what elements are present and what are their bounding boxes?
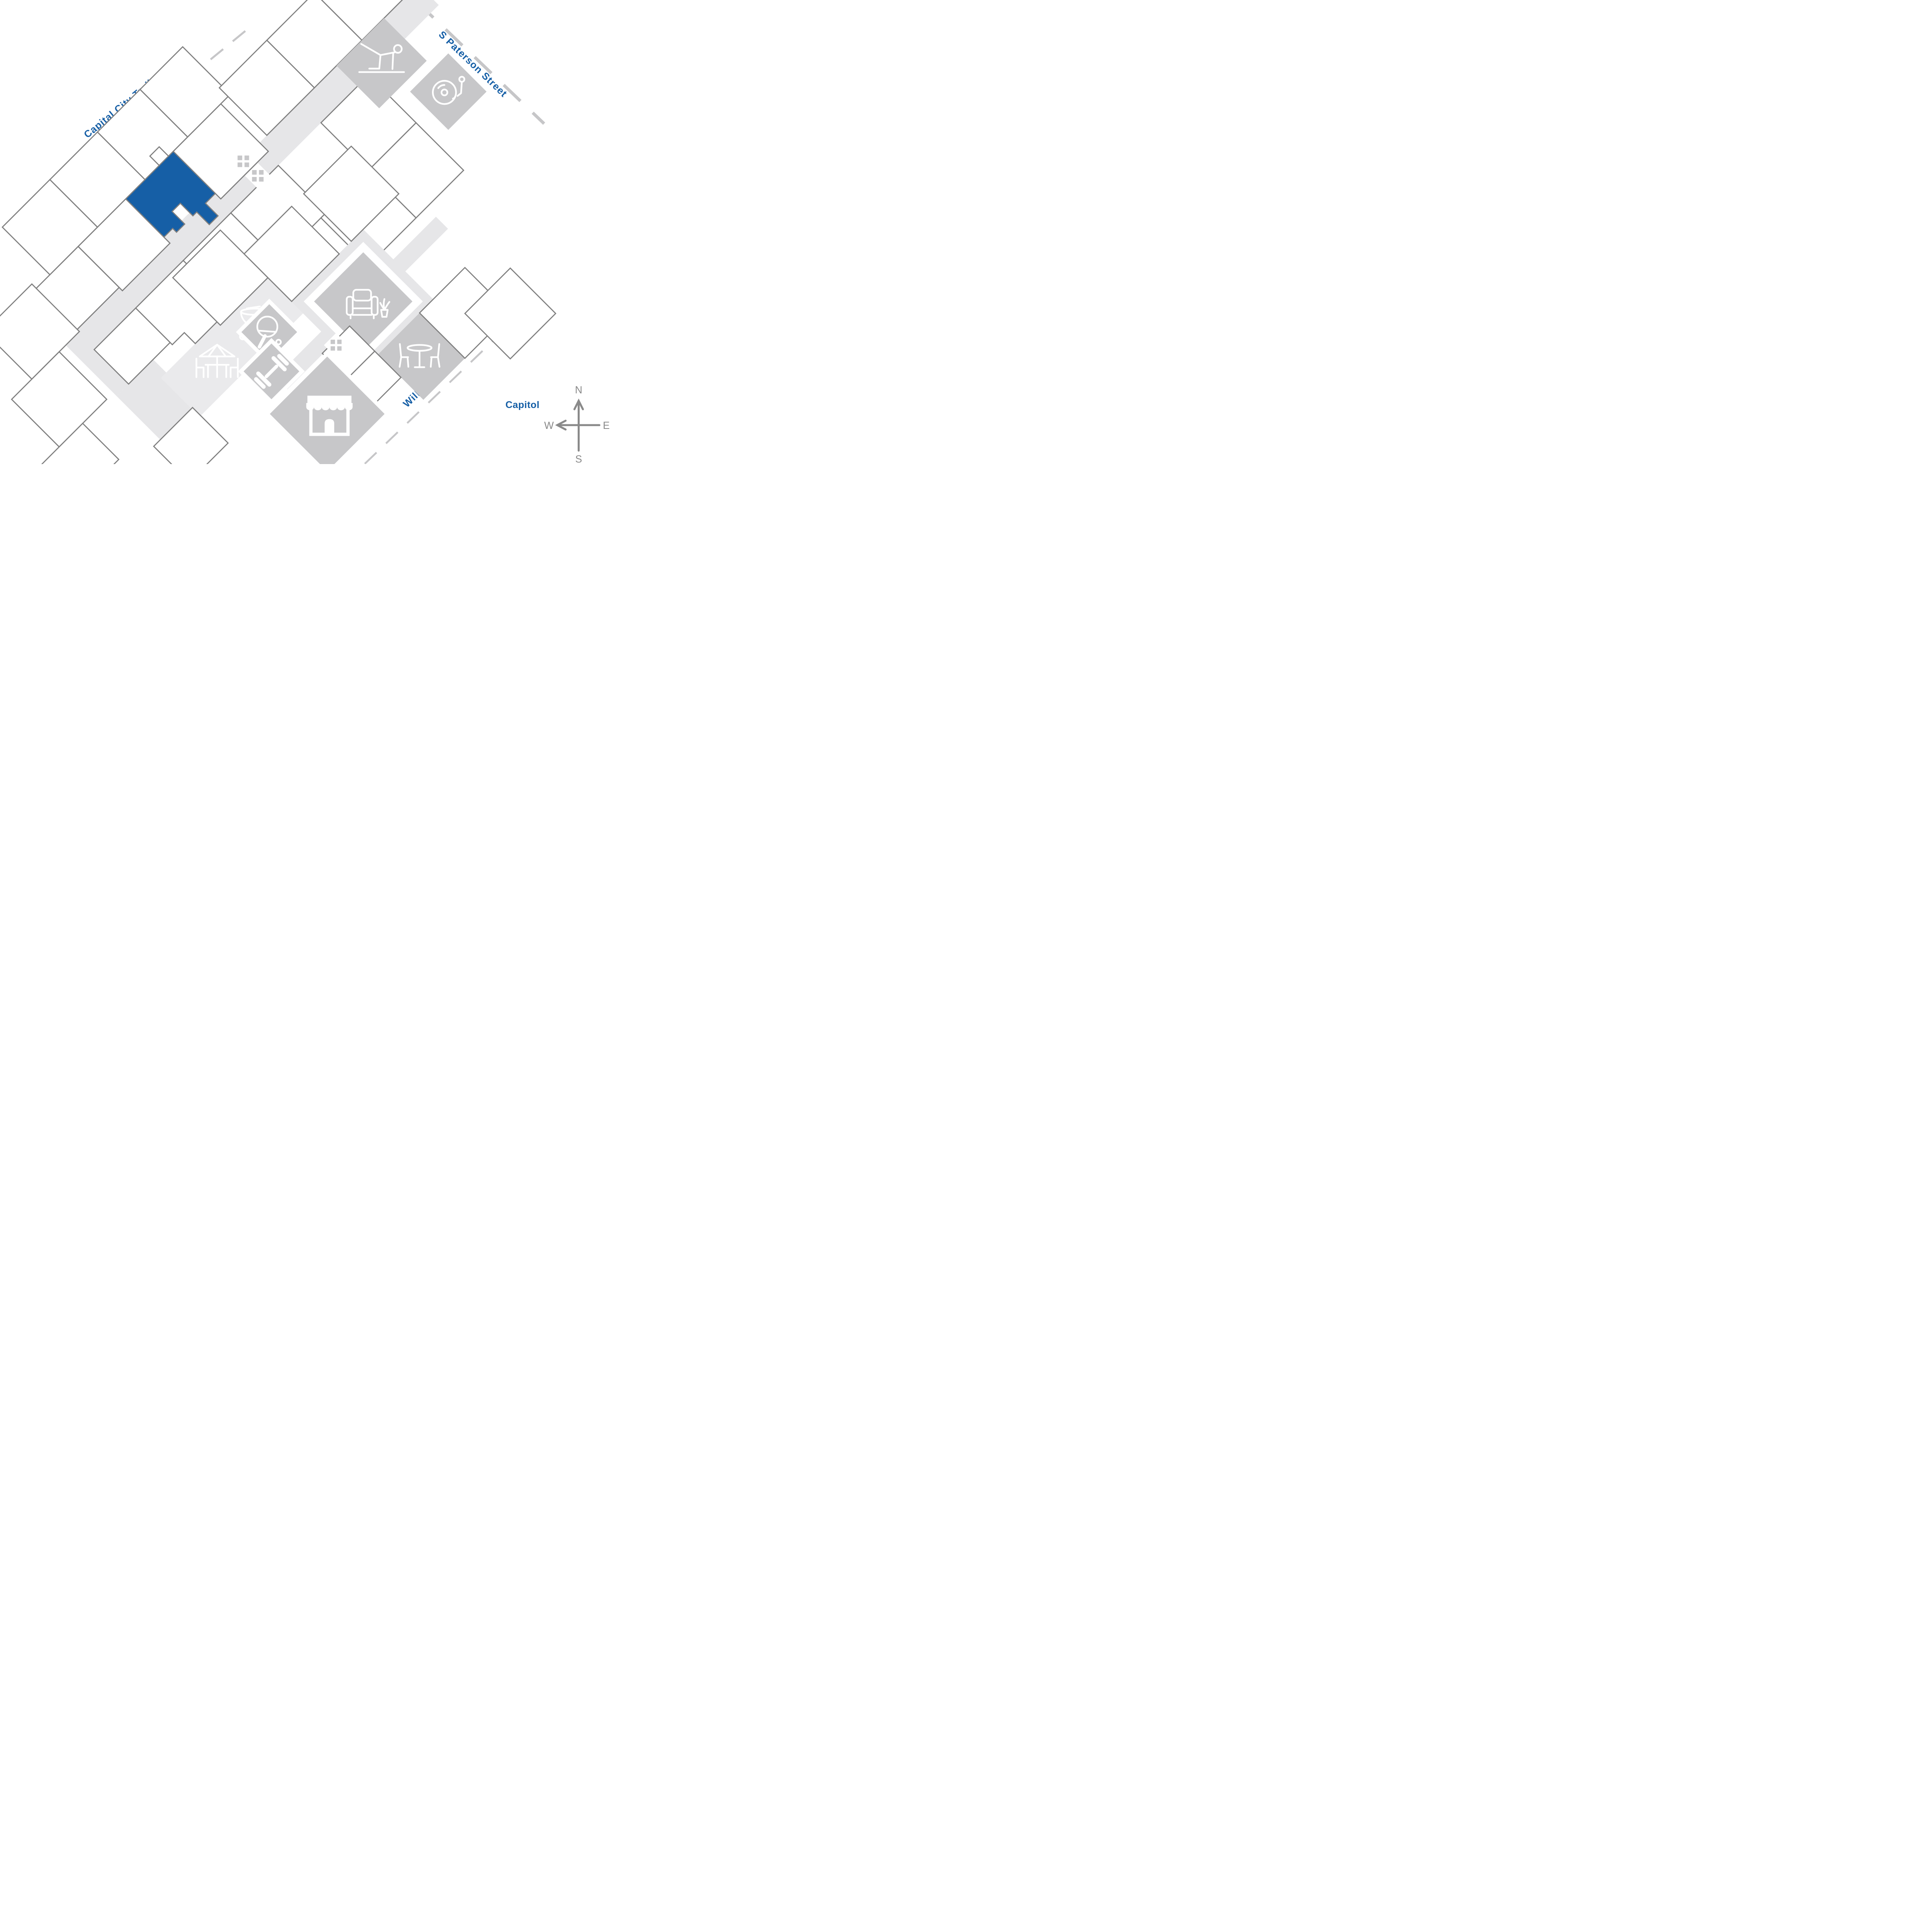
compass-w: W [544, 420, 554, 431]
site-map-page: Capital City Trail S Paterson Street Wil… [0, 0, 610, 464]
site-map: Capital City Trail S Paterson Street Wil… [0, 0, 610, 464]
compass-rose: N S E W [544, 384, 610, 464]
compass-n: N [575, 384, 582, 396]
compass-e: E [603, 420, 610, 431]
capitol-label: Capitol [505, 400, 539, 410]
compass-s: S [575, 453, 582, 464]
